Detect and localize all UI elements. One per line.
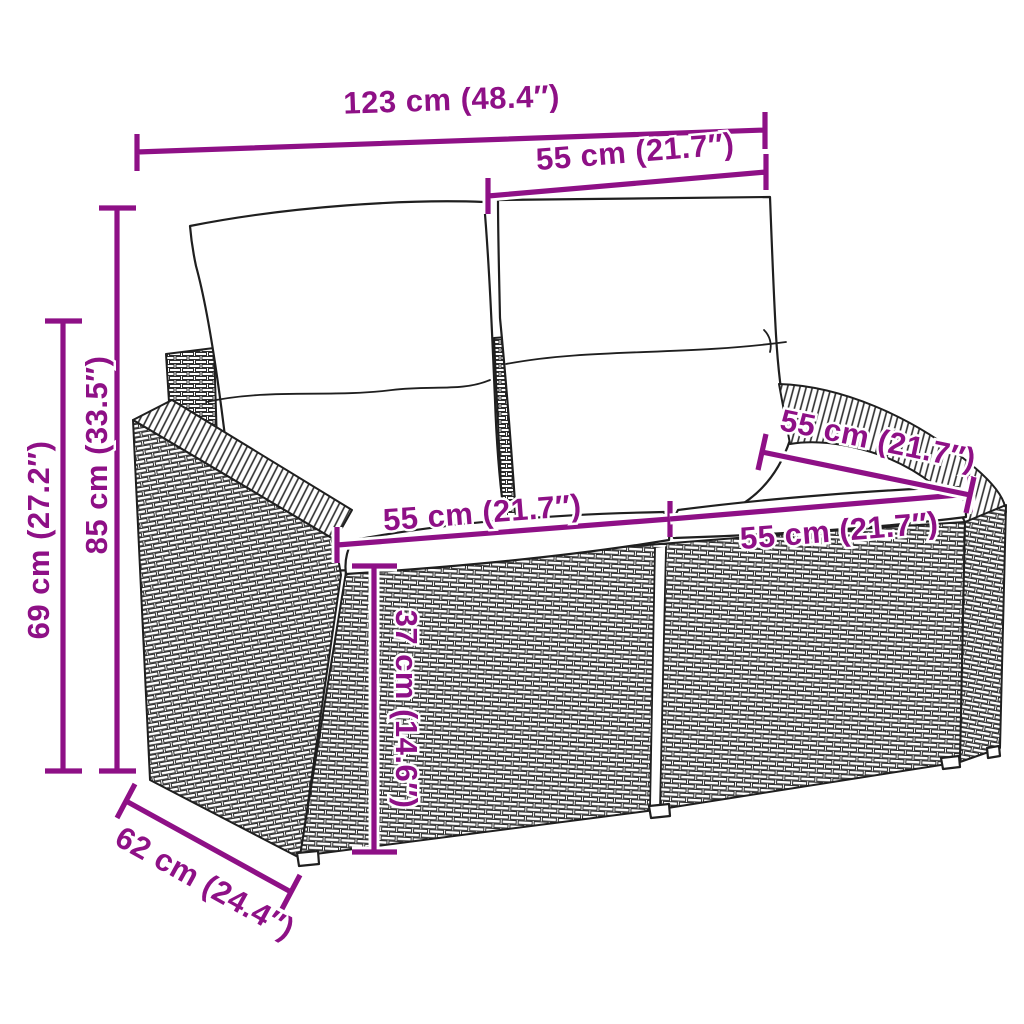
dimension-label: 123 cm (48.4″): [343, 78, 561, 121]
sofa-leg: [941, 756, 960, 769]
dimension-label: 37 cm (14.6″): [389, 610, 424, 809]
dimension-overall-height: 85 cm (33.5″): [79, 208, 136, 771]
sofa-leg: [297, 851, 319, 866]
dimension-label: 69 cm (27.2″): [21, 441, 56, 640]
dimension-label: 85 cm (33.5″): [79, 356, 114, 555]
dimension-armrest-height: 69 cm (27.2″): [21, 321, 82, 771]
product-dimension-diagram: 123 cm (48.4″) 55 cm (21.7″) 85 cm (33.5…: [0, 0, 1024, 1024]
right-side-panel: [960, 505, 1006, 762]
sofa-leg: [987, 746, 1000, 758]
sofa-leg: [649, 804, 670, 818]
sofa-dimension-drawing: 123 cm (48.4″) 55 cm (21.7″) 85 cm (33.5…: [0, 0, 1024, 1024]
